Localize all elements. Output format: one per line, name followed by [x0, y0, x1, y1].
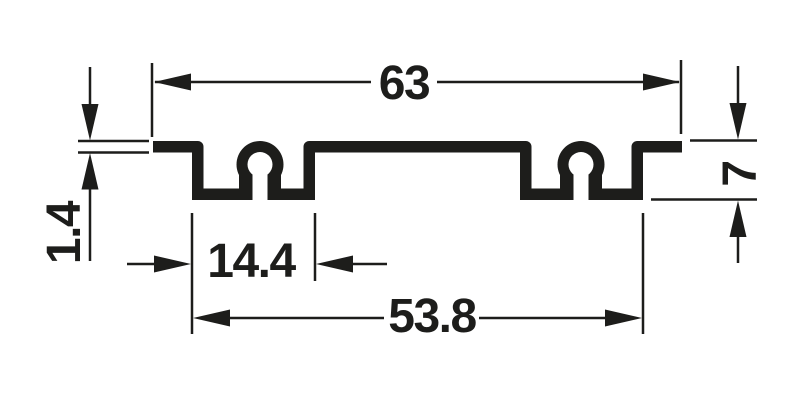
dim-53-8-arrow-right: [605, 310, 642, 327]
dim-1-4-label: 1.4: [38, 200, 91, 264]
left-screw-slot: [253, 165, 268, 202]
profile-middle-web: [309, 147, 526, 200]
profile-right-tab-and-wall: [637, 147, 682, 200]
right-screw-slot: [574, 165, 589, 202]
dim-14-4-arrow-left-pointing: [316, 256, 353, 273]
dim-63-label: 63: [379, 57, 429, 110]
dim-53-8-arrow-left: [193, 310, 230, 327]
technical-drawing-canvas: 63 1.4 7: [0, 0, 800, 400]
dim-7-arrow-down: [730, 103, 747, 140]
dim-14-4-label: 14.4: [207, 235, 296, 288]
dim-53-8-label: 53.8: [388, 290, 476, 343]
dim-profile-height: 7: [651, 66, 767, 263]
profile-left-tab-and-wall: [153, 147, 198, 200]
profile-cross-section: [153, 141, 682, 202]
dim-overall-width: 63: [152, 57, 681, 137]
dim-7-label: 7: [714, 161, 767, 186]
dim-63-arrow-left: [154, 74, 191, 91]
profile-drawing-svg: 63 1.4 7: [0, 0, 800, 400]
dim-material-thickness: 1.4: [38, 67, 149, 264]
dim-63-arrow-right: [643, 74, 680, 91]
dim-channel-width: 14.4: [127, 213, 387, 334]
dim-1-4-arrow-down: [82, 104, 99, 141]
dim-7-arrow-up: [730, 201, 747, 238]
dim-14-4-arrow-right-pointing: [154, 256, 191, 273]
dim-1-4-arrow-up: [82, 153, 99, 190]
